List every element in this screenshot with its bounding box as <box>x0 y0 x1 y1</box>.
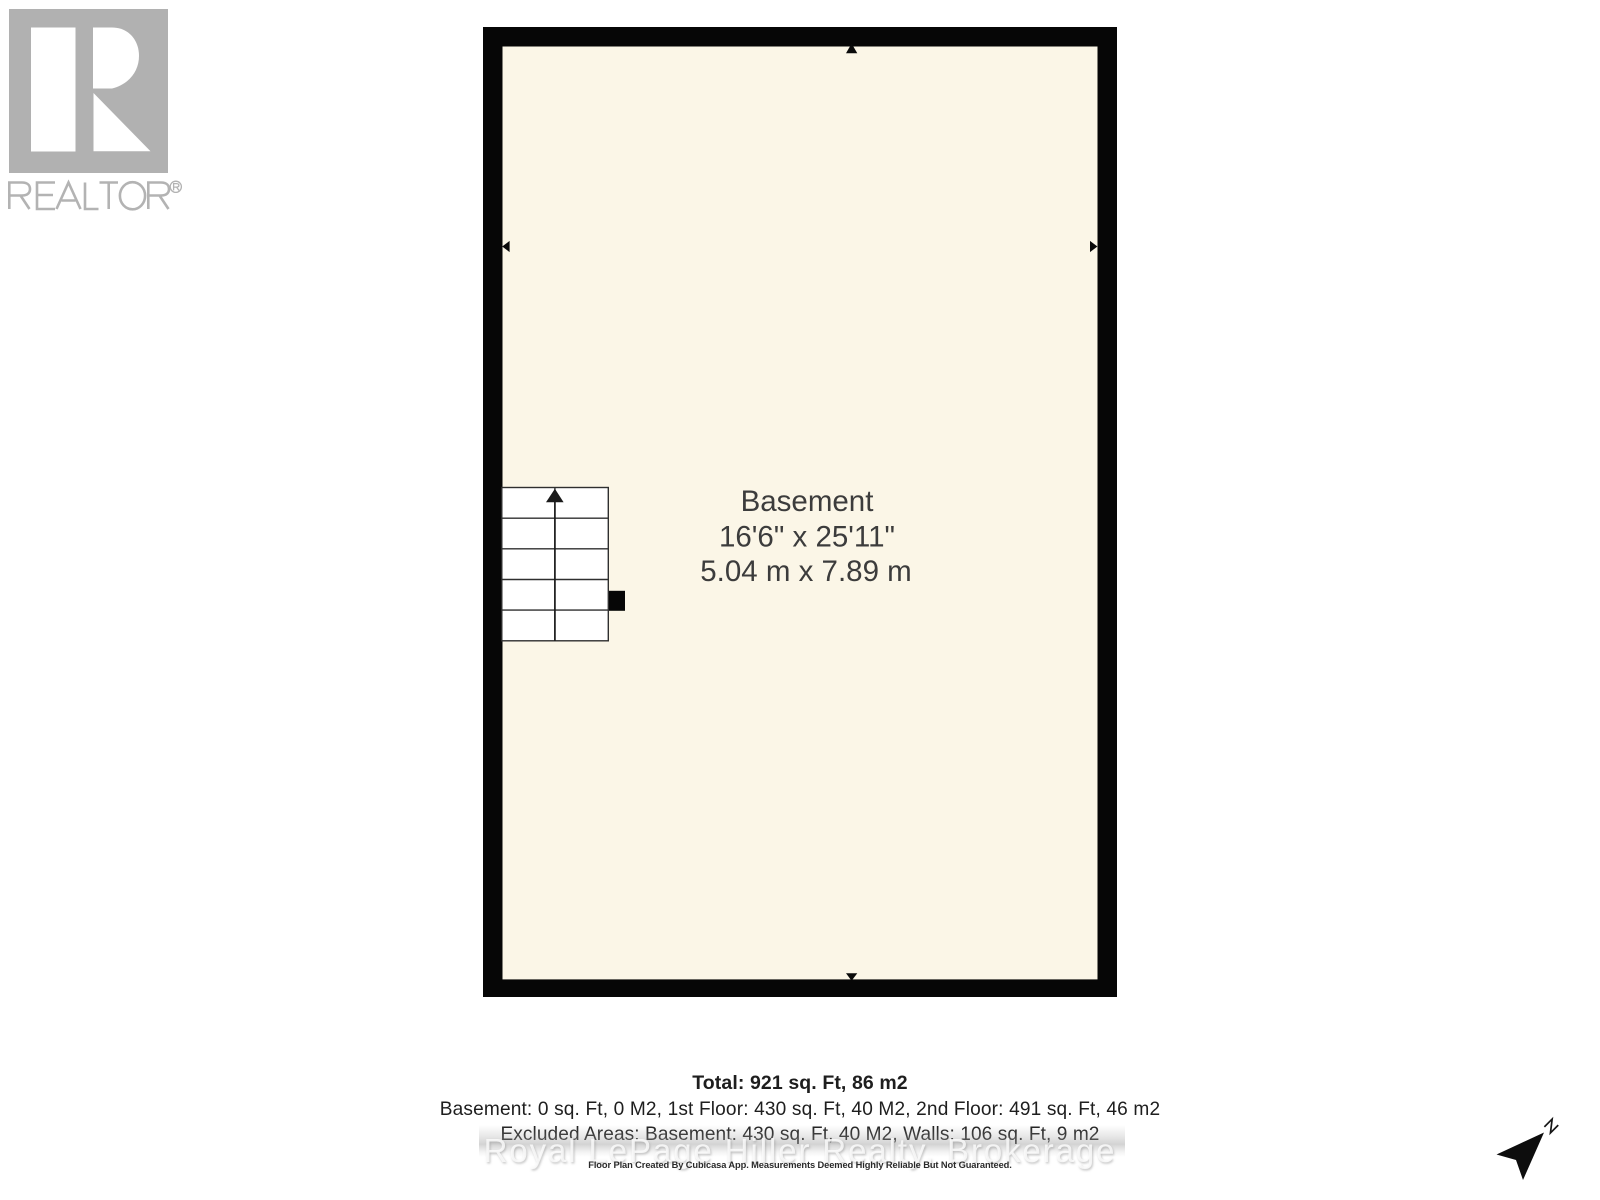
svg-text:Basement: Basement <box>741 485 874 518</box>
svg-text:16'6" x 25'11": 16'6" x 25'11" <box>719 521 895 554</box>
svg-text:5.04 m x 7.89 m: 5.04 m x 7.89 m <box>700 555 912 588</box>
